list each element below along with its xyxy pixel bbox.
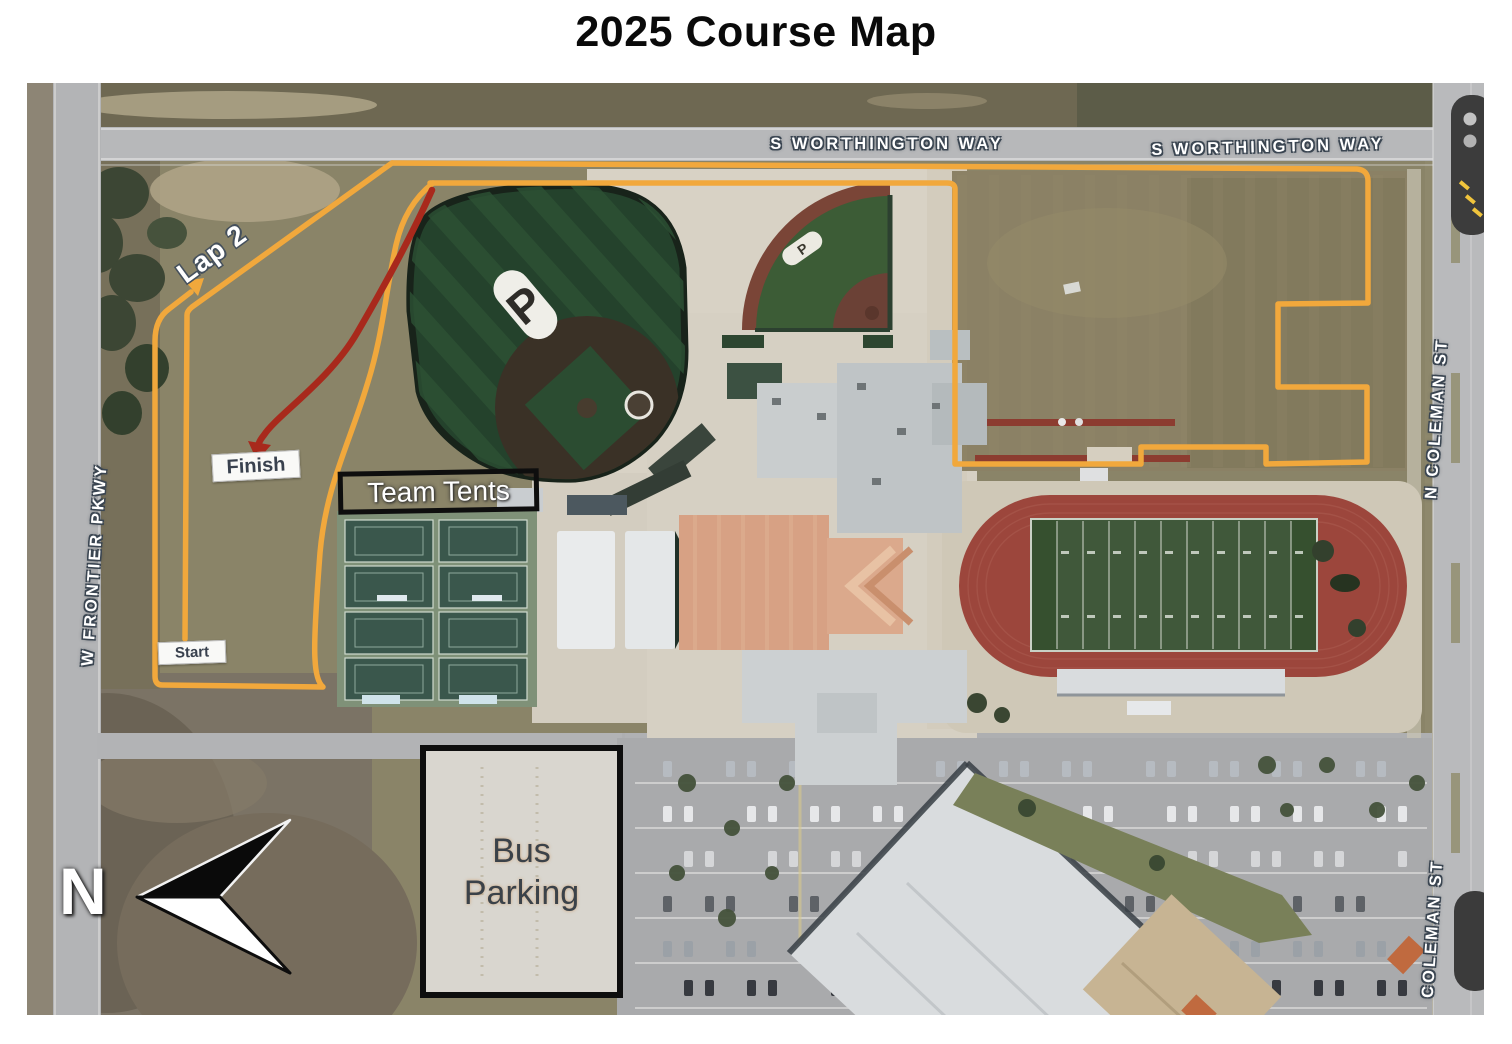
map-ui-pill-top: [1451, 95, 1484, 235]
football-stadium: [942, 481, 1422, 733]
start-label: Start: [158, 640, 227, 665]
bus-parking-label-line2: Parking: [426, 872, 617, 914]
bus-parking-box: Bus Parking: [420, 745, 623, 998]
map-graphics: P P: [27, 83, 1484, 1015]
satellite-map: P P: [27, 83, 1484, 1015]
page-title: 2025 Course Map: [0, 8, 1512, 57]
map-ui-pill-bottom: [1454, 891, 1484, 991]
finish-label: Finish: [211, 450, 300, 483]
street-label-worthington-west: S WORTHINGTON WAY: [727, 135, 1047, 154]
north-label: N: [59, 853, 107, 929]
tennis-courts: [337, 511, 537, 707]
bus-parking-label-line1: Bus: [426, 830, 617, 872]
team-tents-box: Team Tents: [338, 468, 540, 515]
